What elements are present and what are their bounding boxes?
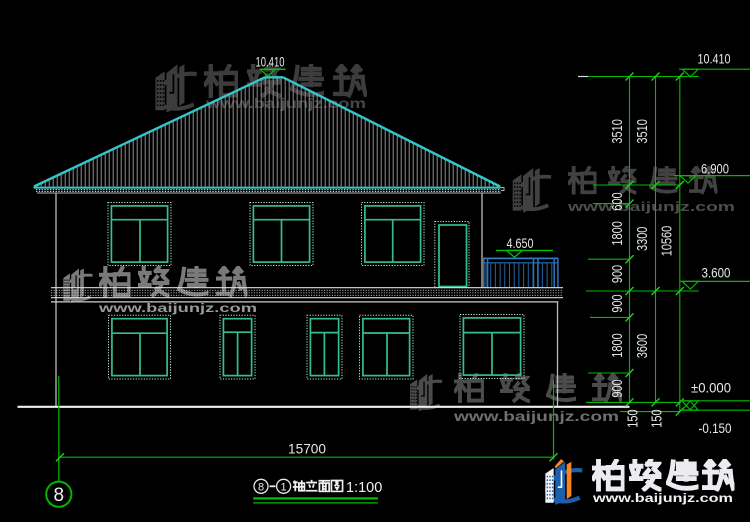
svg-text:150: 150 [625, 409, 642, 427]
svg-text:6.900: 6.900 [701, 161, 729, 177]
svg-text:900: 900 [609, 265, 626, 283]
svg-text:www.baijunjz.com: www.baijunjz.com [566, 200, 735, 214]
svg-text:3300: 3300 [634, 227, 651, 251]
svg-text:www.baijunjz.com: www.baijunjz.com [592, 491, 733, 505]
svg-text:1800: 1800 [609, 333, 626, 357]
svg-text:600: 600 [609, 192, 626, 210]
svg-text:8: 8 [258, 481, 264, 493]
svg-text:10560: 10560 [659, 226, 676, 257]
svg-text:150: 150 [649, 409, 666, 427]
svg-text:900: 900 [609, 294, 626, 312]
svg-text:www.baijunjz.com: www.baijunjz.com [453, 409, 619, 424]
svg-text:1800: 1800 [609, 221, 626, 245]
svg-text:3600: 3600 [634, 334, 651, 358]
svg-text:www.baijunjz.com: www.baijunjz.com [97, 301, 257, 315]
svg-text:10.410: 10.410 [256, 54, 285, 70]
svg-text:3.600: 3.600 [702, 265, 731, 281]
svg-text:3510: 3510 [634, 119, 651, 143]
svg-text:10.410: 10.410 [698, 51, 731, 67]
svg-text:1: 1 [281, 481, 287, 493]
svg-text:±0.000: ±0.000 [691, 380, 731, 396]
svg-text:4.650: 4.650 [507, 235, 534, 251]
svg-text:-0.150: -0.150 [699, 420, 732, 436]
svg-text:8: 8 [54, 485, 65, 506]
svg-text:1:100: 1:100 [346, 480, 382, 496]
svg-text:15700: 15700 [288, 441, 326, 457]
svg-text:900: 900 [609, 379, 626, 397]
svg-text:3510: 3510 [609, 119, 626, 143]
